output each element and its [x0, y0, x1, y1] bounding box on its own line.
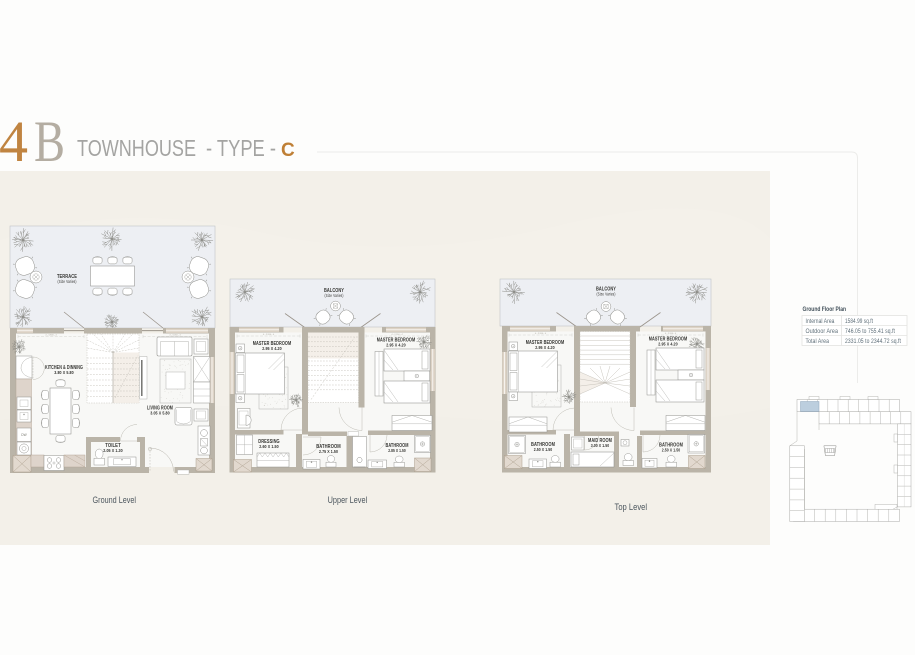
svg-text:2.85 X 1.50: 2.85 X 1.50	[388, 448, 406, 453]
svg-text:2.50 X 1.50: 2.50 X 1.50	[534, 447, 553, 452]
svg-text:4 - 2.950 - 4: 4 - 2.950 - 4	[665, 333, 677, 335]
svg-text:Internal Area: Internal Area	[806, 318, 835, 325]
svg-text:4 - 2.950 - 4: 4 - 2.950 - 4	[535, 333, 547, 335]
svg-text:Ground Floor Plan: Ground Floor Plan	[803, 306, 847, 313]
svg-text:2.95 X 4.20: 2.95 X 4.20	[658, 341, 678, 346]
svg-text:2.95 X 4.20: 2.95 X 4.20	[386, 342, 406, 347]
svg-text:4 - 2.950 - 4: 4 - 2.950 - 4	[263, 334, 275, 336]
svg-text:4: 4	[0, 109, 28, 174]
svg-text:4 - 3.800 - 4: 4 - 3.800 - 4	[45, 335, 57, 337]
svg-text:DW: DW	[21, 433, 27, 437]
svg-text:2331.05 to 2344.72 sq.ft: 2331.05 to 2344.72 sq.ft	[845, 338, 901, 345]
svg-text:2.05 X 1.30: 2.05 X 1.30	[103, 448, 123, 453]
svg-text:3.00 X 1.50: 3.00 X 1.50	[591, 443, 610, 448]
svg-text:(Size Varies): (Size Varies)	[325, 293, 344, 298]
svg-text:4 - 3.050 - 4: 4 - 3.050 - 4	[169, 335, 181, 337]
svg-text:Upper Level: Upper Level	[328, 495, 368, 505]
svg-text:746.05 to 755.41 sq.ft: 746.05 to 755.41 sq.ft	[845, 328, 895, 335]
svg-text:3.80 X 5.80: 3.80 X 5.80	[54, 370, 74, 375]
svg-text:2.75 X 1.50: 2.75 X 1.50	[319, 449, 338, 454]
svg-text:4 - 2.950 - 4: 4 - 2.950 - 4	[391, 334, 403, 336]
svg-text:Outdoor Area: Outdoor Area	[806, 328, 839, 335]
svg-text:Total Area: Total Area	[806, 338, 830, 345]
svg-text:2.95 X 4.20: 2.95 X 4.20	[535, 345, 555, 350]
svg-text:2.95 X 4.20: 2.95 X 4.20	[262, 346, 282, 351]
svg-text:3.05 X 5.80: 3.05 X 5.80	[150, 410, 170, 415]
svg-text:TOWNHOUSE: TOWNHOUSE	[77, 135, 196, 161]
svg-text:- TYPE -: - TYPE -	[206, 135, 276, 161]
svg-text:(Size Varies): (Size Varies)	[58, 279, 77, 284]
svg-text:(Size Varies): (Size Varies)	[597, 292, 616, 297]
svg-text:Top Level: Top Level	[615, 502, 648, 512]
svg-text:B: B	[34, 109, 65, 174]
svg-text:2.50 X 1.50: 2.50 X 1.50	[662, 447, 681, 452]
svg-text:C: C	[281, 140, 295, 161]
svg-text:2.60 X 1.50: 2.60 X 1.50	[259, 444, 279, 449]
svg-text:1584.99 sq.ft: 1584.99 sq.ft	[845, 318, 873, 325]
svg-text:Ground Level: Ground Level	[93, 495, 137, 505]
